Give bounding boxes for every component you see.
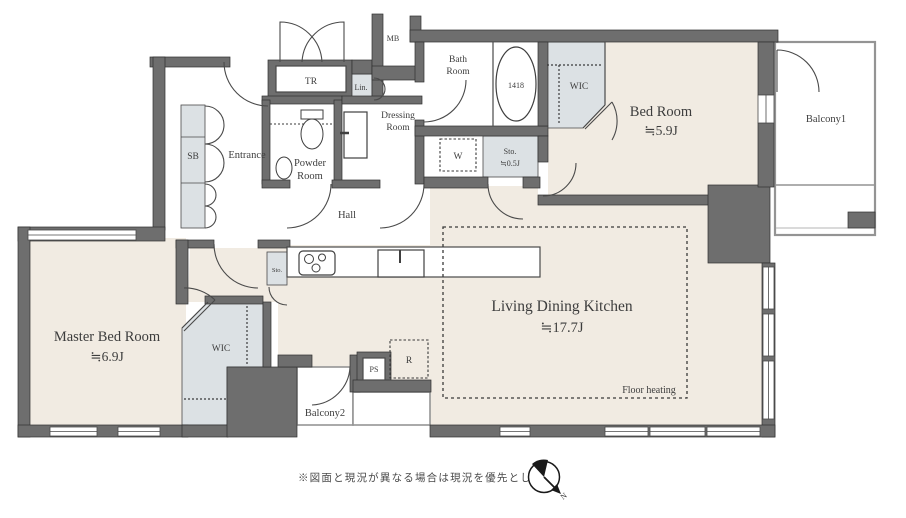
toilet-tank xyxy=(301,110,323,119)
sb-label: SB xyxy=(187,152,199,162)
pillar-southwest xyxy=(227,367,297,437)
ldk-area: ≒17.7J xyxy=(540,320,584,336)
master-bedroom-area: ≒6.9J xyxy=(90,349,123,364)
tub-size-label: 1418 xyxy=(508,81,524,90)
fridge-label: R xyxy=(406,356,413,366)
powder-sink xyxy=(276,157,292,179)
bath-label-2: Room xyxy=(446,67,470,77)
mb-label: MB xyxy=(387,34,399,43)
pillar-east xyxy=(708,185,770,263)
balcony2-label: Balcony2 xyxy=(305,408,345,419)
ps-label: PS xyxy=(370,365,379,374)
footer: ※図面と現況が異なる場合は現況を優先とします。 N xyxy=(298,459,569,501)
disclaimer-text: ※図面と現況が異なる場合は現況を優先とします。 xyxy=(298,471,566,484)
balcony2-extension xyxy=(353,392,430,425)
trunk-door-left xyxy=(280,22,322,62)
toilet-bowl xyxy=(301,119,323,149)
dressing-room-door xyxy=(380,184,424,228)
shoe-box-doors-upper xyxy=(205,106,224,182)
entrance-door xyxy=(224,62,268,106)
bath-door xyxy=(424,80,466,122)
balcony1-label: Balcony1 xyxy=(806,114,846,125)
floor-heating-label: Floor heating xyxy=(622,385,676,396)
powder-label-1: Powder xyxy=(294,158,327,169)
balcony1-area xyxy=(775,42,875,235)
powder-room-door xyxy=(287,184,331,228)
washer-label: W xyxy=(454,152,463,162)
powder-label-2: Room xyxy=(297,171,323,182)
shoe-box-doors-lower xyxy=(205,184,216,228)
vanity-unit xyxy=(344,112,367,158)
trunk-door-right xyxy=(302,22,344,62)
tr-label: TR xyxy=(305,77,318,87)
dressing-label-2: Room xyxy=(386,123,410,133)
dressing-label-1: Dressing xyxy=(381,111,415,121)
wic-upper-label: WIC xyxy=(570,82,588,92)
entrance-label: Entrance xyxy=(228,150,266,161)
storage-small-label: Sto. xyxy=(504,147,517,156)
stove-burner-1 xyxy=(305,255,314,264)
storage-small-floor xyxy=(483,136,538,177)
wic-master-label: WIC xyxy=(212,344,230,354)
master-bedroom-label: Master Bed Room xyxy=(54,329,161,345)
storage-kitchen-label: Sto. xyxy=(272,267,283,274)
stove-burner-3 xyxy=(312,264,320,272)
floorplan-svg: MB TR Lin. Bath Room 1418 WIC Dressing R… xyxy=(0,0,906,518)
bedroom-area: ≒5.9J xyxy=(644,123,677,138)
stove-burner-2 xyxy=(319,254,326,261)
balcony1-corner-pillar xyxy=(848,212,875,228)
floorplan-page: MB TR Lin. Bath Room 1418 WIC Dressing R… xyxy=(0,0,906,518)
ldk-label: Living Dining Kitchen xyxy=(491,298,632,315)
shoe-box xyxy=(181,105,205,228)
compass-n-label: N xyxy=(559,491,569,502)
storage-small-area: ≒0.5J xyxy=(500,159,520,168)
bedroom-label: Bed Room xyxy=(630,104,693,120)
lin-label: Lin. xyxy=(354,83,367,92)
bath-label-1: Bath xyxy=(449,55,467,65)
hall-label: Hall xyxy=(338,210,356,221)
